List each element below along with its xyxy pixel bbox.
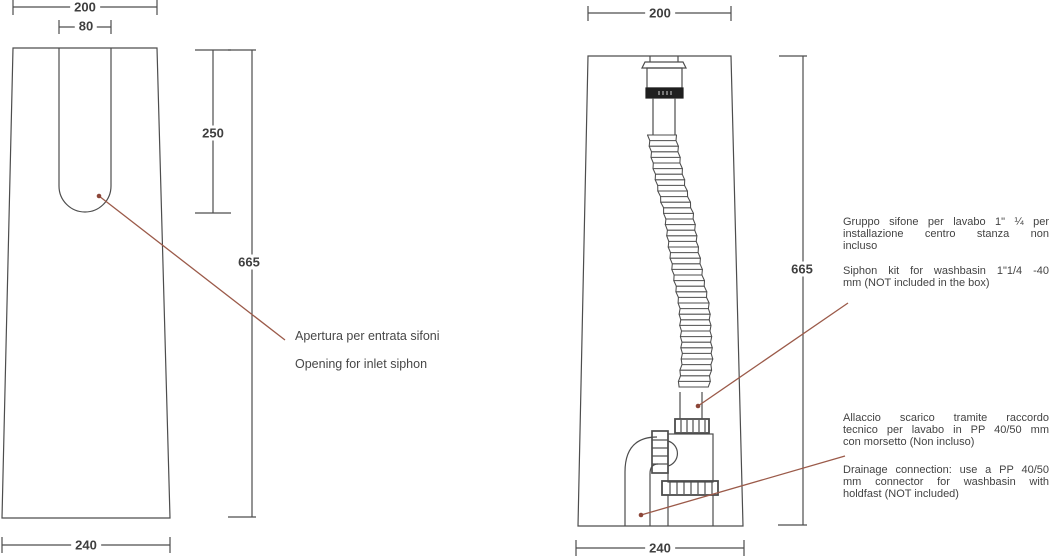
trap-body <box>668 434 713 482</box>
annotation-siphon-kit-it: Gruppo sifone per lavabo 1" ¼ per instal… <box>843 216 1049 252</box>
dim-label-slot-depth: 250 <box>198 126 228 141</box>
elbow-socket <box>668 441 677 466</box>
union-nut <box>675 419 709 433</box>
annotation-drainage-it: Allaccio scarico tramite raccordo tecnic… <box>843 412 1049 448</box>
annotation-siphon-kit-en: Siphon kit for washbasin 1"1/4 -40 mm (N… <box>843 265 1049 289</box>
right-dim-665 <box>778 56 807 525</box>
siphon-leader-line <box>696 303 848 408</box>
leader-dot <box>97 194 102 199</box>
annotation-inlet-opening-en: Opening for inlet siphon <box>295 357 440 371</box>
siphon-slot <box>59 48 111 212</box>
dim-label-left-bottom-width: 240 <box>71 538 101 553</box>
drain-fitting <box>642 56 686 135</box>
drain-body <box>647 68 682 88</box>
corrugated-hose <box>648 135 713 387</box>
annotation-siphon-kit: Gruppo sifone per lavabo 1" ¼ per instal… <box>843 216 1049 289</box>
left-view <box>2 0 256 553</box>
annotation-inlet-opening-it: Apertura per entrata sifoni <box>295 329 440 343</box>
dim-label-left-height: 665 <box>234 255 264 270</box>
leader-dot <box>639 513 644 518</box>
dim-label-left-top-width: 200 <box>70 0 100 15</box>
drain-flange <box>642 62 686 68</box>
left-pedestal-outline <box>2 48 170 518</box>
annotation-inlet-opening: Apertura per entrata sifoni Opening for … <box>295 329 440 371</box>
annotation-drainage-en: Drainage connection: use a PP 40/50 mm c… <box>843 464 1049 500</box>
annotation-drainage: Allaccio scarico tramite raccordo tecnic… <box>843 412 1049 500</box>
dim-label-right-top-width: 200 <box>645 6 675 21</box>
dim-label-right-height: 665 <box>787 262 817 277</box>
technical-drawing-page: 200 80 250 665 240 200 665 240 Apertura … <box>0 0 1050 557</box>
leader-dot <box>696 404 701 409</box>
dim-label-right-bottom-width: 240 <box>645 541 675 556</box>
left-dim-665 <box>228 50 256 517</box>
right-view <box>576 6 807 556</box>
dim-label-slot-width: 80 <box>75 19 97 34</box>
drain-nut <box>646 88 683 98</box>
